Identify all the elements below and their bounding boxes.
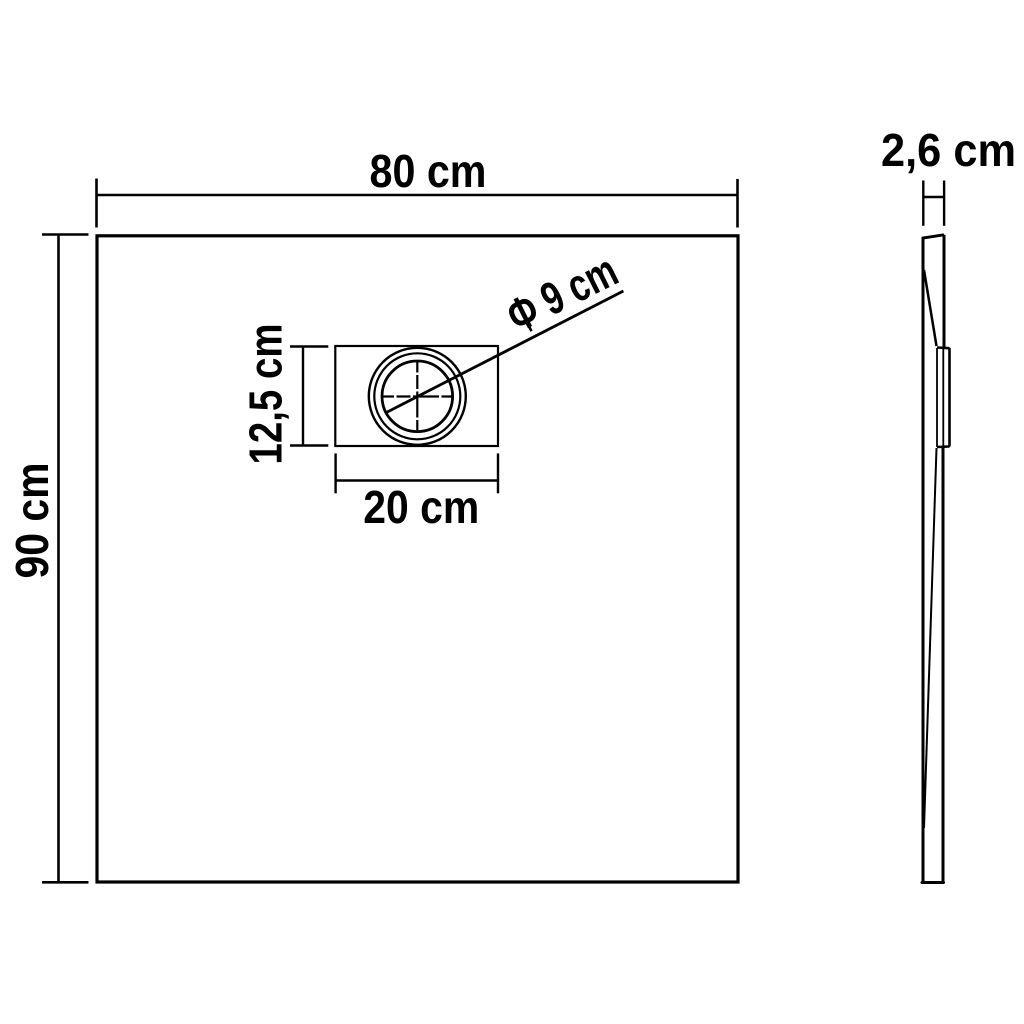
svg-text:20 cm: 20 cm xyxy=(363,481,479,533)
svg-text:90 cm: 90 cm xyxy=(6,463,58,579)
svg-text:12,5 cm: 12,5 cm xyxy=(240,324,292,465)
svg-text:2,6 cm: 2,6 cm xyxy=(881,124,1016,176)
svg-text:80 cm: 80 cm xyxy=(370,145,487,197)
